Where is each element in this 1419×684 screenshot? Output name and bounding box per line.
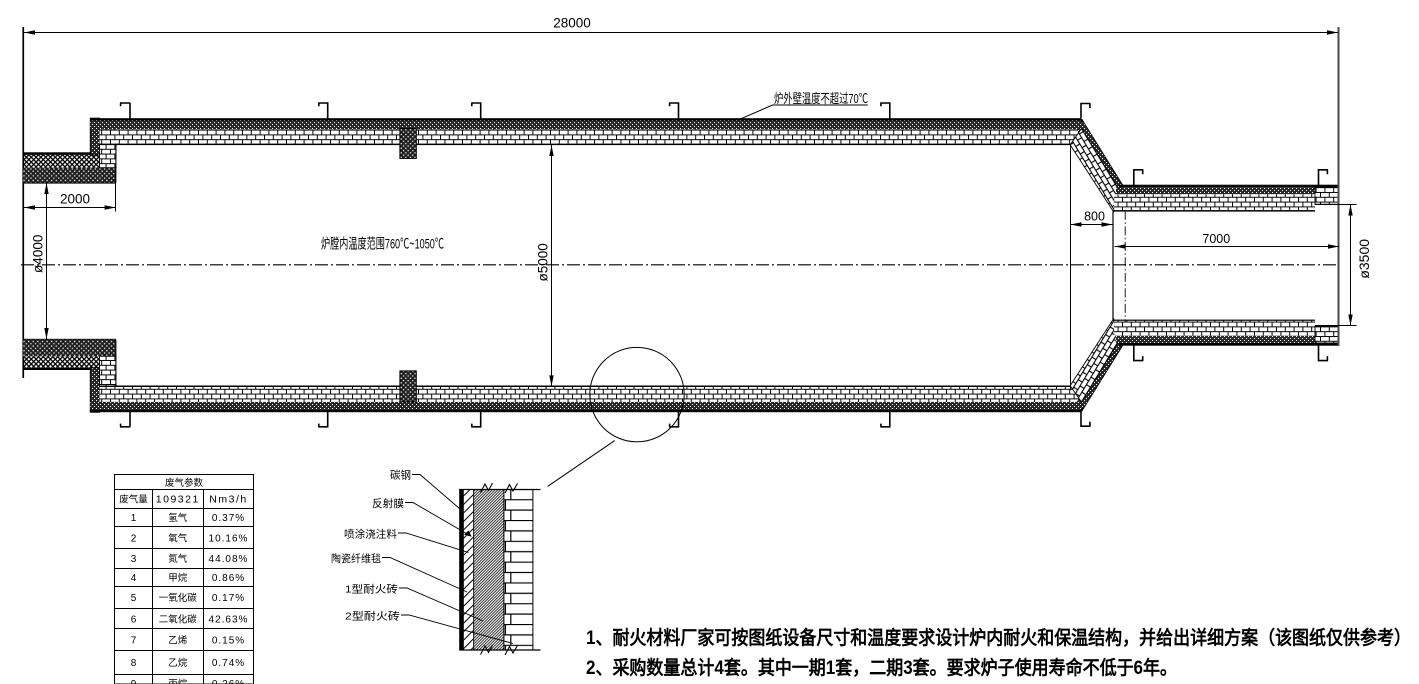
svg-text:44.08%: 44.08% [209,554,249,565]
svg-text:8: 8 [131,658,137,669]
svg-text:1: 1 [131,513,137,524]
svg-text:7: 7 [131,636,137,647]
svg-text:碳钢: 碳钢 [390,469,411,482]
svg-text:ø5000: ø5000 [535,243,550,281]
svg-text:二氧化碳: 二氧化碳 [159,614,198,626]
svg-text:2、采购数量总计4套。其中一期1套，二期3套。要求炉子使用寿: 2、采购数量总计4套。其中一期1套，二期3套。要求炉子使用寿命不低于6年。 [586,656,1177,679]
svg-text:0.37%: 0.37% [212,513,245,524]
svg-text:1型耐火砖: 1型耐火砖 [345,583,399,596]
svg-text:800: 800 [1084,210,1105,224]
svg-text:废气参数: 废气参数 [165,477,204,489]
svg-text:ø3500: ø3500 [1356,239,1372,279]
svg-text:乙烯: 乙烯 [168,635,188,647]
svg-text:一氧化碳: 一氧化碳 [159,592,198,604]
svg-text:废气量: 废气量 [119,494,148,506]
svg-text:2000: 2000 [60,192,90,207]
svg-text:0.74%: 0.74% [212,658,245,669]
svg-text:氮气: 氮气 [168,553,188,565]
svg-text:0.17%: 0.17% [212,593,245,604]
svg-text:9: 9 [131,679,137,684]
svg-text:丙烷: 丙烷 [168,678,188,684]
svg-text:炉外壁温度不超过70℃: 炉外壁温度不超过70℃ [774,91,868,106]
svg-text:109321: 109321 [156,494,200,506]
svg-text:4: 4 [131,573,137,584]
svg-text:0.86%: 0.86% [212,573,245,584]
svg-text:2型耐火砖: 2型耐火砖 [345,610,401,623]
svg-text:喷涂浇注料: 喷涂浇注料 [344,528,398,541]
svg-text:5: 5 [131,593,137,604]
svg-text:3: 3 [131,554,137,565]
svg-text:10.16%: 10.16% [209,534,249,545]
svg-text:乙烷: 乙烷 [168,657,188,669]
svg-text:氧气: 氧气 [168,533,188,545]
svg-text:0.15%: 0.15% [212,636,245,647]
svg-text:6: 6 [131,615,137,626]
svg-text:炉膛内温度范围760℃~1050℃: 炉膛内温度范围760℃~1050℃ [321,236,444,252]
svg-text:1、耐火材料厂家可按图纸设备尺寸和温度要求设计炉内耐火和保温: 1、耐火材料厂家可按图纸设备尺寸和温度要求设计炉内耐火和保温结构，并给出详细方案… [586,626,1411,649]
svg-text:0.26%: 0.26% [212,679,245,684]
svg-text:42.63%: 42.63% [209,615,249,626]
svg-text:ø4000: ø4000 [31,235,46,273]
svg-text:7000: 7000 [1202,232,1230,246]
svg-text:甲烷: 甲烷 [168,572,188,584]
svg-text:陶瓷纤维毯: 陶瓷纤维毯 [331,552,381,565]
svg-text:Nm3/h: Nm3/h [209,494,247,506]
svg-text:反射膜: 反射膜 [372,497,405,510]
svg-text:2: 2 [131,534,137,545]
svg-text:氢气: 氢气 [168,512,188,524]
svg-text:28000: 28000 [553,16,591,31]
